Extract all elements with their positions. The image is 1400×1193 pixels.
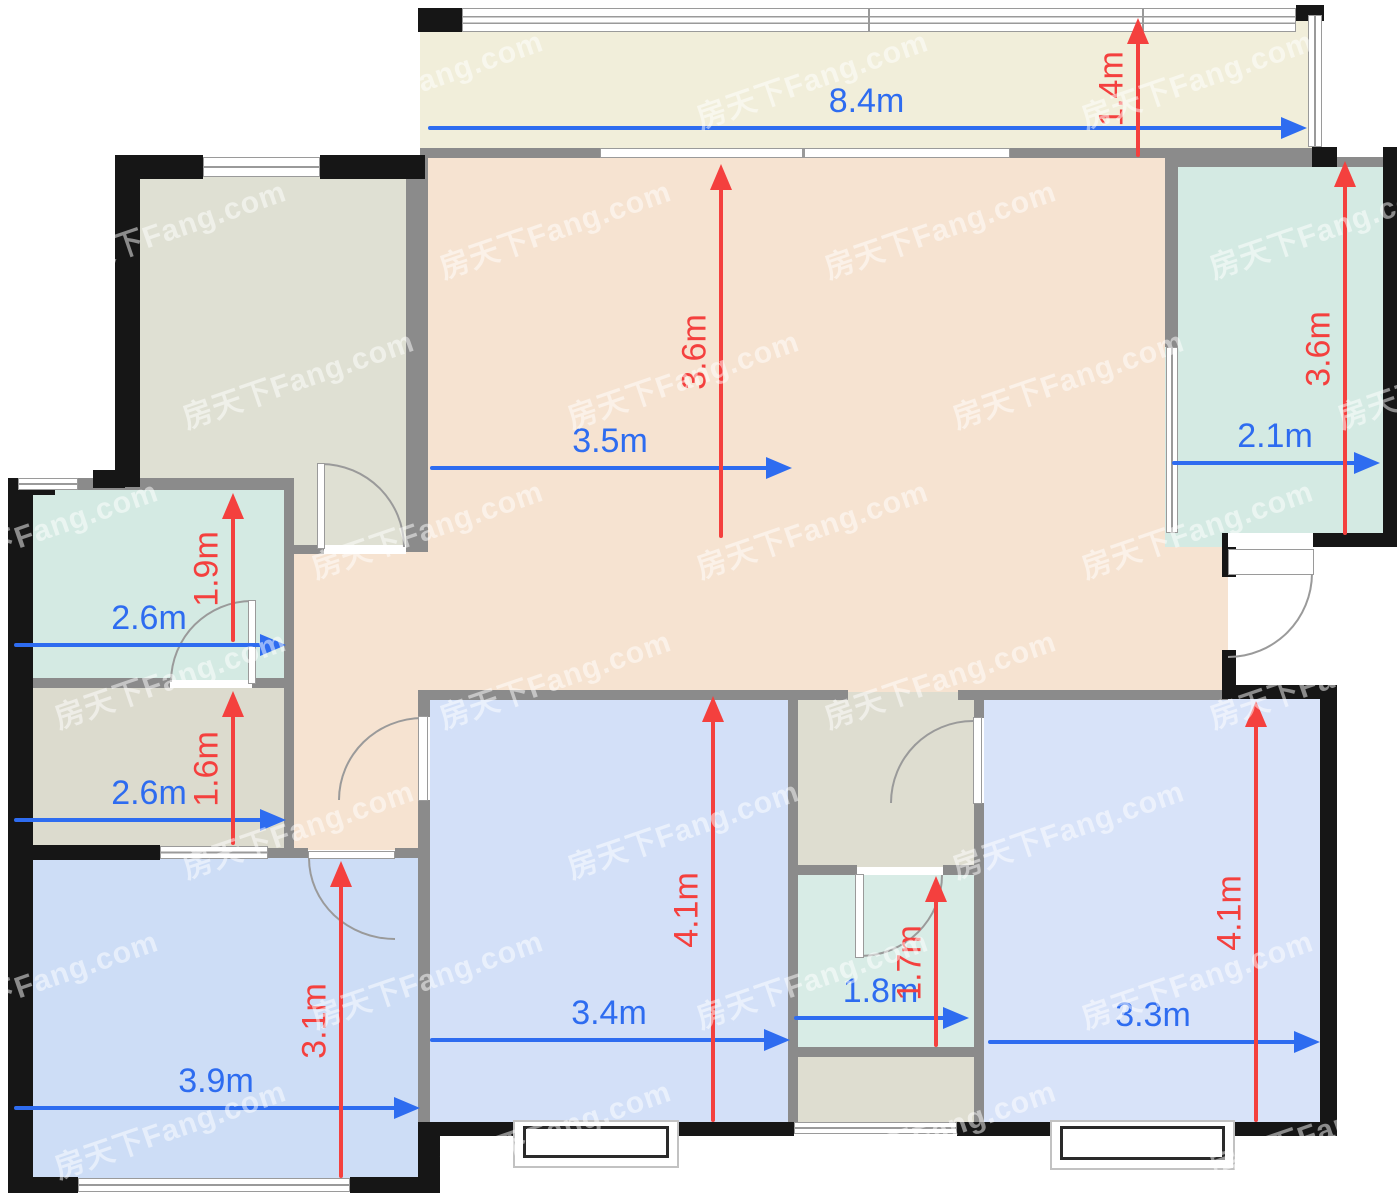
floor-plan: 8.4m 1.4m 3.5m 3.6m 2.1m 3.6m 2.6m 1.9m (0, 0, 1400, 1193)
wall-segment (418, 690, 794, 700)
door-leaf (317, 463, 325, 549)
sliding-door-track (802, 148, 805, 158)
wall-segment (788, 1047, 984, 1057)
entry-door-swing-arc (1228, 573, 1313, 658)
wall-segment (984, 690, 1228, 700)
dimension-bedroom-bottom-left-width: 3.9m (14, 1106, 418, 1110)
wall-segment (284, 478, 294, 858)
dimension-label: 8.4m (829, 82, 905, 121)
dimension-bathroom-left-width: 2.6m (14, 643, 284, 647)
utility-middle-floor (794, 1055, 984, 1122)
wall-segment (1165, 157, 1178, 347)
bay-window-frame (523, 1126, 669, 1158)
wall-segment (268, 848, 290, 858)
dimension-line (14, 1106, 412, 1110)
dimension-room-top-right-width: 2.1m (1172, 461, 1378, 465)
dimension-label: 2.1m (1237, 417, 1313, 456)
arrow-up-icon (710, 164, 732, 190)
dimension-living-width: 3.5m (430, 466, 790, 470)
dimension-line (430, 1038, 782, 1042)
hallway-floor (290, 547, 430, 858)
dimension-bedroom-bottom-left-depth: 3.1m (339, 863, 343, 1178)
dimension-label: 3.6m (676, 314, 715, 390)
dimension-bathroom-left-depth: 1.9m (231, 495, 235, 642)
entry-door-leaf (1228, 549, 1314, 575)
dimension-line (1136, 26, 1140, 157)
dimension-label: 3.1m (296, 983, 335, 1059)
wall-segment (957, 1122, 1055, 1136)
wall-segment (420, 148, 600, 158)
living-room-floor-east (1165, 547, 1228, 692)
wall-segment (974, 870, 984, 1122)
window-balcony-top (462, 8, 1296, 32)
arrow-up-icon (1334, 161, 1356, 187)
wall-segment (418, 1122, 440, 1193)
dimension-storage-left-depth: 1.6m (231, 693, 235, 845)
wall-segment (788, 865, 857, 875)
arrow-up-icon (1245, 701, 1267, 727)
dimension-line (934, 884, 938, 1047)
dimension-label: 1.6m (188, 731, 227, 807)
dimension-label: 4.1m (1211, 875, 1250, 951)
wall-segment (406, 157, 428, 552)
wall-segment (115, 155, 140, 487)
window-room-top-left (203, 157, 320, 177)
arrow-up-icon (1127, 18, 1149, 44)
dimension-bathroom-middle-depth: 1.7m (934, 878, 938, 1047)
dimension-label: 3.5m (572, 422, 648, 461)
wall-segment (320, 155, 425, 179)
bedroom-bottom-right-floor (984, 692, 1320, 1122)
wall-segment (418, 858, 430, 1122)
door-leaf (248, 600, 256, 684)
dimension-line (719, 172, 723, 538)
dimension-balcony-width: 8.4m (428, 126, 1305, 130)
wall-segment (252, 678, 294, 688)
wall-segment (788, 692, 798, 1122)
dimension-line (339, 869, 343, 1178)
window-room-top-right (1166, 347, 1178, 533)
entry-door-gap (1228, 533, 1313, 547)
dimension-line (988, 1040, 1312, 1044)
bay-window-frame (1060, 1126, 1225, 1160)
wall-segment (8, 478, 33, 1193)
wall-segment (974, 803, 984, 870)
dimension-line (231, 501, 235, 642)
wall-segment (10, 678, 170, 688)
arrow-right-icon (1354, 452, 1380, 474)
dimension-line (428, 126, 1299, 130)
dimension-bedroom-bottom-center-depth: 4.1m (711, 698, 715, 1122)
arrow-up-icon (702, 696, 724, 722)
bay-window-bottom-center (513, 1120, 679, 1168)
bedroom-bottom-center-floor (418, 692, 794, 1122)
door-gap (857, 867, 943, 875)
watermark-text: 房天下Fang.com (0, 17, 163, 138)
dimension-label: 4.1m (668, 872, 707, 948)
wall-segment (788, 690, 848, 700)
window-bathroom-left (18, 478, 78, 490)
watermark-text: 房天下Fang.com (1330, 767, 1400, 888)
dimension-bedroom-bottom-right-width: 3.3m (988, 1040, 1318, 1044)
dimension-label: 3.4m (571, 994, 647, 1033)
dimension-label: 1.4m (1093, 51, 1132, 127)
wall-segment (290, 848, 308, 858)
dimension-line (711, 704, 715, 1122)
dimension-line (430, 466, 784, 470)
dimension-line (1343, 169, 1347, 535)
wall-corner (418, 8, 462, 32)
room-top-right-floor (1165, 157, 1397, 547)
dimension-label: 3.6m (1300, 311, 1339, 387)
wall-segment (8, 845, 160, 860)
door-leaf (308, 851, 395, 859)
dimension-label: 2.6m (111, 774, 187, 813)
dimension-balcony-depth: 1.4m (1136, 20, 1140, 157)
sliding-door-balcony (600, 148, 1010, 158)
dimension-bedroom-bottom-right-depth: 4.1m (1254, 703, 1258, 1122)
arrow-right-icon (260, 634, 286, 656)
door-leaf (973, 717, 982, 804)
living-room-floor (418, 157, 1165, 692)
dimension-line (231, 699, 235, 845)
wall-segment (440, 1122, 515, 1136)
door-leaf (855, 874, 864, 958)
wall-segment (8, 1177, 78, 1193)
dimension-bathroom-middle-width: 1.8m (794, 1016, 967, 1020)
window-utility-middle (794, 1122, 957, 1134)
door-leaf (418, 716, 428, 801)
storage-left-floor (10, 688, 294, 858)
arrow-right-icon (1281, 117, 1307, 139)
window-balcony-right (1308, 15, 1322, 147)
dimension-label: 1.7m (891, 925, 930, 1001)
arrow-up-icon (330, 861, 352, 887)
wall-segment (1222, 685, 1337, 699)
arrow-up-icon (925, 876, 947, 902)
wall-segment (1383, 147, 1397, 547)
dimension-line (14, 643, 278, 647)
arrow-up-icon (222, 691, 244, 717)
wall-segment (418, 800, 430, 858)
dimension-line (1254, 709, 1258, 1122)
wall-segment (974, 692, 984, 718)
window-mullion (868, 8, 870, 32)
dimension-living-depth: 3.6m (719, 166, 723, 538)
arrow-right-icon (260, 809, 286, 831)
arrow-right-icon (394, 1097, 420, 1119)
window-storage-left (160, 846, 268, 859)
wall-corner (93, 470, 125, 488)
dimension-label: 1.9m (188, 531, 227, 607)
dimension-label: 3.3m (1115, 996, 1191, 1035)
arrow-up-icon (222, 493, 244, 519)
dimension-room-top-right-depth: 3.6m (1343, 163, 1347, 535)
wall-segment (1320, 692, 1337, 1136)
dimension-label: 3.9m (178, 1062, 254, 1101)
bay-window-bottom-right (1050, 1120, 1235, 1170)
arrow-right-icon (943, 1007, 969, 1029)
arrow-right-icon (764, 1029, 790, 1051)
window-bedroom-bottom-left (78, 1178, 350, 1192)
dimension-bedroom-bottom-center-width: 3.4m (430, 1038, 788, 1042)
wall-segment (675, 1122, 794, 1136)
dimension-line (14, 818, 278, 822)
dimension-line (1172, 461, 1372, 465)
dimension-label: 2.6m (111, 599, 187, 638)
arrow-right-icon (1294, 1031, 1320, 1053)
arrow-right-icon (766, 457, 792, 479)
dimension-storage-left-width: 2.6m (14, 818, 284, 822)
